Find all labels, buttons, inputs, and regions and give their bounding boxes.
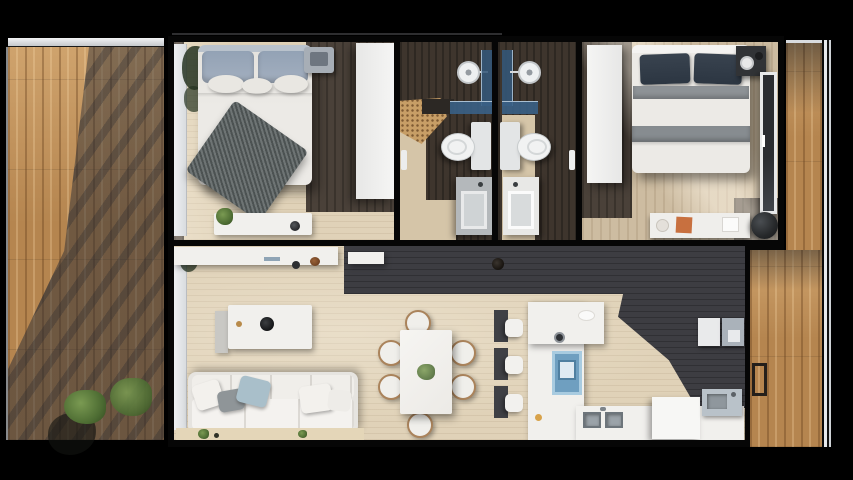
bathroom-1 bbox=[400, 42, 492, 240]
coffee-table bbox=[228, 305, 312, 349]
vanity-faucet bbox=[513, 182, 518, 187]
bed bbox=[632, 45, 750, 173]
toilet-bowl bbox=[517, 133, 551, 161]
steel-sink-unit bbox=[702, 389, 742, 416]
pillow-navy bbox=[639, 53, 690, 85]
island-fruit bbox=[535, 414, 542, 421]
kitchen-island-top bbox=[528, 302, 604, 344]
console-bowl bbox=[310, 257, 320, 266]
bar-stool bbox=[505, 319, 523, 337]
balcony-strip bbox=[176, 428, 364, 440]
balcony-plant bbox=[198, 429, 209, 439]
left-terrace-railing bbox=[8, 38, 164, 47]
shrub bbox=[110, 378, 152, 416]
tv-console bbox=[174, 247, 338, 265]
side-table bbox=[215, 311, 228, 353]
bathroom-2 bbox=[498, 42, 576, 240]
desk-notepad bbox=[722, 217, 739, 232]
shower-glass-screen bbox=[450, 101, 492, 114]
wardrobe bbox=[356, 43, 394, 199]
side-shelf bbox=[348, 252, 384, 264]
vanity-sink bbox=[508, 191, 534, 229]
desk-paper-orange bbox=[676, 217, 693, 234]
bar-stool bbox=[505, 356, 523, 374]
vanity-sink bbox=[461, 191, 487, 229]
duvet-fold bbox=[632, 142, 750, 146]
wall-top-highlight bbox=[172, 33, 502, 35]
blanket-band bbox=[633, 86, 749, 99]
towel-rail bbox=[569, 150, 575, 170]
bench-tray bbox=[290, 221, 300, 231]
desk bbox=[650, 213, 750, 238]
laptop-screen bbox=[310, 52, 328, 66]
toilet-seat bbox=[447, 139, 467, 155]
steel-basin bbox=[707, 394, 727, 409]
vanity-faucet bbox=[478, 182, 483, 187]
wardrobe bbox=[587, 45, 622, 183]
small-pillow bbox=[208, 75, 244, 93]
island-kettle bbox=[554, 332, 565, 343]
blanket-band bbox=[632, 126, 750, 142]
bedroom-1 bbox=[174, 42, 394, 240]
shower-glass-panel bbox=[481, 50, 492, 106]
console-strip bbox=[264, 257, 280, 261]
wall-cabinet bbox=[722, 318, 744, 346]
right-terrace-shadow-upper bbox=[786, 43, 822, 113]
toilet-bowl bbox=[441, 133, 475, 161]
headboard bbox=[632, 45, 750, 53]
small-pillow bbox=[274, 75, 308, 93]
floorplan bbox=[0, 0, 853, 480]
towel-rail bbox=[401, 150, 407, 170]
right-terrace-shadow-lower bbox=[750, 250, 822, 290]
sofa bbox=[188, 372, 358, 434]
shrub bbox=[64, 390, 106, 424]
left-terrace bbox=[8, 38, 164, 440]
vanity bbox=[503, 177, 539, 235]
small-pillow bbox=[242, 78, 272, 94]
balcony-plant bbox=[298, 430, 307, 438]
wall-cabinet bbox=[698, 318, 720, 346]
dining-chair bbox=[450, 340, 476, 366]
balcony-pot bbox=[214, 433, 219, 438]
sink-basin bbox=[605, 412, 623, 428]
floor-path bbox=[400, 200, 456, 240]
ceiling-light bbox=[492, 258, 504, 270]
toilet-seat bbox=[527, 139, 547, 155]
duvet-fold bbox=[198, 93, 312, 97]
bedroom-2 bbox=[582, 42, 778, 240]
living-area bbox=[174, 246, 745, 440]
terrace-door-curtain bbox=[174, 252, 187, 430]
steel-faucet bbox=[731, 392, 736, 397]
island-plate bbox=[578, 310, 595, 321]
dining-chair bbox=[450, 374, 476, 400]
island-blue-mat bbox=[552, 351, 582, 395]
coffee-table-tray bbox=[260, 317, 274, 331]
sink-basin bbox=[583, 412, 601, 428]
right-terrace bbox=[750, 40, 831, 447]
sink-faucet bbox=[600, 407, 606, 411]
sofa-pillow-white bbox=[327, 389, 352, 412]
dining-chair bbox=[407, 412, 433, 438]
bench-plant bbox=[216, 208, 233, 225]
bar-stool bbox=[505, 394, 523, 412]
shower-head bbox=[518, 61, 541, 84]
shower-glass-screen bbox=[502, 101, 538, 114]
cabinet-panel bbox=[728, 330, 740, 342]
island-sink-basin bbox=[558, 360, 576, 380]
left-terrace-edge-line bbox=[6, 47, 8, 440]
right-terrace-railing bbox=[822, 40, 831, 447]
appliance-block bbox=[652, 397, 700, 439]
dining-table bbox=[400, 330, 452, 414]
shower-glass-panel bbox=[502, 50, 513, 106]
desk-dish bbox=[656, 219, 669, 232]
coffee-table-gold-item bbox=[236, 321, 242, 327]
table-centerpiece bbox=[417, 364, 435, 380]
vanity bbox=[456, 177, 492, 235]
wall-shadow-band bbox=[344, 246, 745, 294]
console-item bbox=[292, 261, 300, 269]
shower-head bbox=[457, 61, 480, 84]
laptop-tray bbox=[304, 47, 334, 73]
deck-access-frame bbox=[752, 363, 767, 396]
